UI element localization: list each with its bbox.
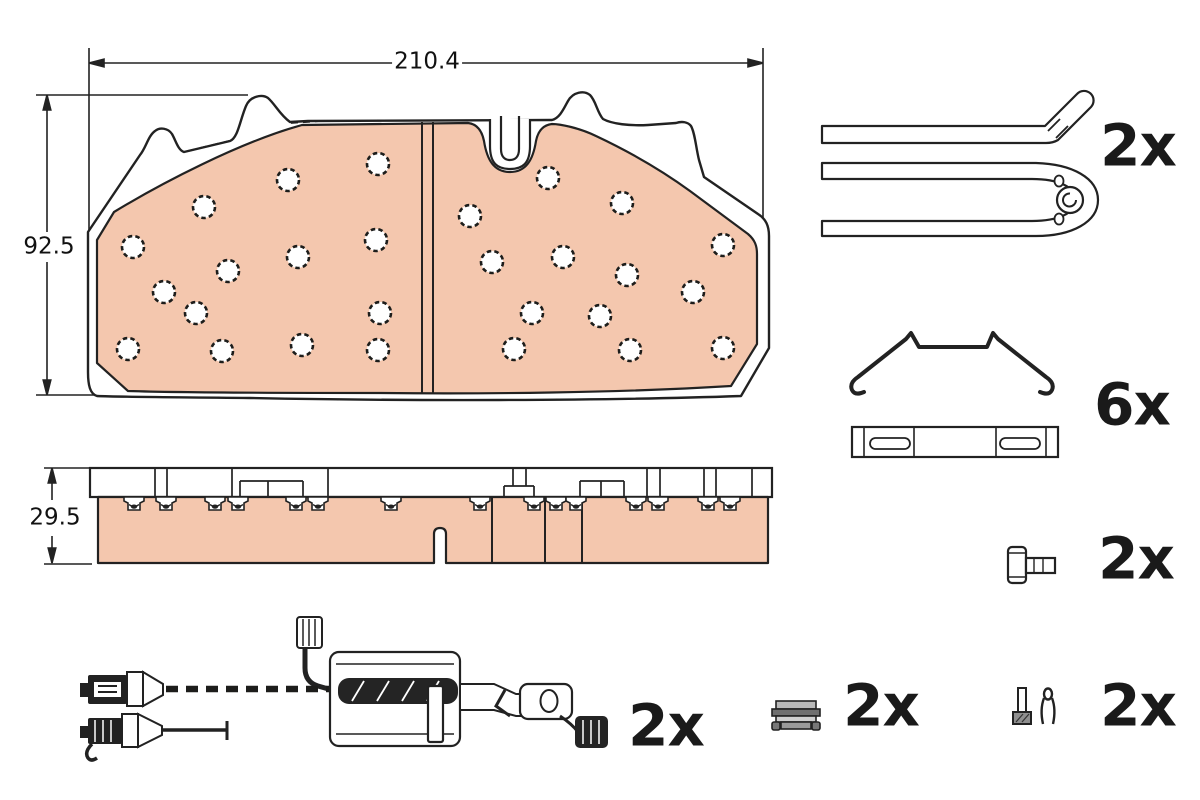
side-friction-strip <box>98 497 768 563</box>
sensor-arm <box>460 684 522 716</box>
front-height-dimension: 92.5 <box>21 236 76 259</box>
side-backing-strip <box>90 468 772 497</box>
sensor-plug-stem <box>305 648 332 690</box>
fixing-pins-quantity: 2x <box>1100 676 1176 734</box>
bolt-shaft <box>1026 558 1055 573</box>
t-pin-stem <box>1018 688 1026 712</box>
wear-sensors-quantity: 2x <box>628 696 704 754</box>
diagram-line-art <box>0 0 1200 800</box>
sensor-clamp <box>428 686 443 742</box>
wear-sensor-drawing <box>80 617 608 760</box>
retaining-clips-quantity: 2x <box>843 676 919 734</box>
split-pin <box>1042 689 1055 725</box>
retainer-pins-quantity: 2x <box>1100 116 1176 174</box>
bolt-drawing <box>1008 547 1055 583</box>
spring-clip-profile <box>851 333 1053 394</box>
fixing-pins-drawing <box>1013 688 1054 724</box>
retainer-pins-drawing <box>822 91 1098 236</box>
probe-connector <box>88 718 122 744</box>
side-view-drawing <box>44 468 772 564</box>
front-view-drawing <box>36 48 769 400</box>
bent-pin <box>822 91 1094 143</box>
center-notch <box>490 116 530 169</box>
brake-pad-fitting-diagram: 210.4 92.5 29.5 2x 6x 2x 2x 2x 2x <box>0 0 1200 800</box>
t-pin-head <box>1013 712 1031 724</box>
front-width-dimension: 210.4 <box>392 51 462 74</box>
retaining-clip-drawing <box>772 701 820 730</box>
guide-bolts-quantity: 2x <box>1098 529 1174 587</box>
spring-clips-quantity: 6x <box>1094 375 1170 433</box>
spring-clip-drawing <box>851 333 1058 457</box>
side-thickness-dimension: 29.5 <box>27 507 82 530</box>
